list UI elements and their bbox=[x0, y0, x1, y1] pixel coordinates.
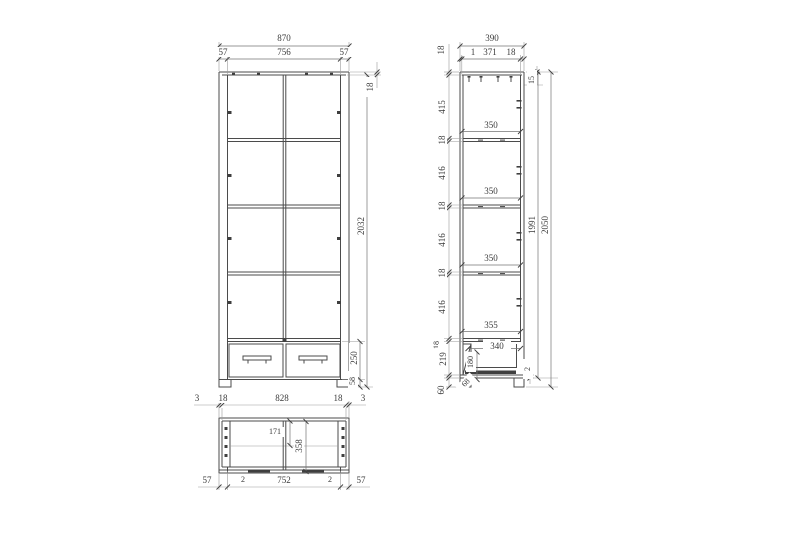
dim-bottom-panel-left: 18 bbox=[215, 393, 231, 403]
dim-side-carcass-height: 1991 bbox=[527, 210, 537, 240]
dim-side-section-4: 416 bbox=[437, 292, 447, 322]
dim-front-inner-width: 756 bbox=[270, 47, 298, 57]
dim-side-back-top-offset: 15 bbox=[527, 70, 537, 90]
dim-bottom-gap-left: 2 bbox=[239, 475, 247, 485]
dim-bottom-stile-right: 57 bbox=[353, 475, 369, 485]
dim-side-inner-depth: 371 bbox=[476, 47, 504, 57]
technical-drawing-canvas: 870 57 756 57 18 2032 250 58 390 1 371 1… bbox=[0, 0, 800, 533]
dim-bottom-back-inset: 171 bbox=[266, 427, 284, 437]
dim-side-clear-3: 350 bbox=[477, 253, 505, 263]
dim-front-drawer-height: 250 bbox=[349, 343, 359, 373]
dim-bottom-door-width: 752 bbox=[270, 475, 298, 485]
dim-side-back-panel: 18 bbox=[503, 47, 519, 57]
dim-side-overall-depth: 390 bbox=[478, 33, 506, 43]
dim-bottom-stile-left: 57 bbox=[199, 475, 215, 485]
dim-front-overall-width: 870 bbox=[270, 33, 298, 43]
dim-bottom-inner-depth: 358 bbox=[294, 431, 304, 461]
dim-side-drawer-section: 219 bbox=[438, 344, 448, 374]
dim-side-drawer-depth: 340 bbox=[483, 341, 511, 351]
dim-side-shelf-2: 18 bbox=[437, 196, 447, 216]
dim-bottom-inner-width: 828 bbox=[268, 393, 296, 403]
dim-bottom-gap-right: 2 bbox=[326, 475, 334, 485]
dim-side-drawer-height: 180 bbox=[466, 352, 476, 372]
dim-side-section-2: 416 bbox=[437, 158, 447, 188]
dim-side-section-1: 415 bbox=[437, 92, 447, 122]
dim-side-shelf-3: 18 bbox=[437, 263, 447, 283]
dim-side-bottom-gap: 2 bbox=[523, 359, 533, 379]
dim-front-top-thickness: 18 bbox=[365, 77, 375, 97]
dim-side-section-3: 416 bbox=[437, 225, 447, 255]
dim-bottom-edge-right: 3 bbox=[359, 393, 367, 403]
dim-side-top-thickness: 18 bbox=[436, 40, 446, 60]
dim-side-clear-4: 355 bbox=[477, 320, 505, 330]
dim-front-left-panel: 57 bbox=[215, 47, 231, 57]
dim-front-base-height: 58 bbox=[348, 371, 358, 391]
dim-front-body-height: 2032 bbox=[356, 211, 366, 241]
dim-bottom-panel-right: 18 bbox=[330, 393, 346, 403]
dim-side-overall-height: 2050 bbox=[540, 210, 550, 240]
dim-side-clear-1: 350 bbox=[477, 120, 505, 130]
drawing-linework bbox=[0, 0, 800, 533]
dim-bottom-edge-left: 3 bbox=[193, 393, 201, 403]
dim-side-clear-2: 350 bbox=[477, 186, 505, 196]
dim-front-right-panel: 57 bbox=[336, 47, 352, 57]
dim-side-shelf-1: 18 bbox=[437, 130, 447, 150]
dim-side-plinth-height: 60 bbox=[436, 380, 446, 400]
